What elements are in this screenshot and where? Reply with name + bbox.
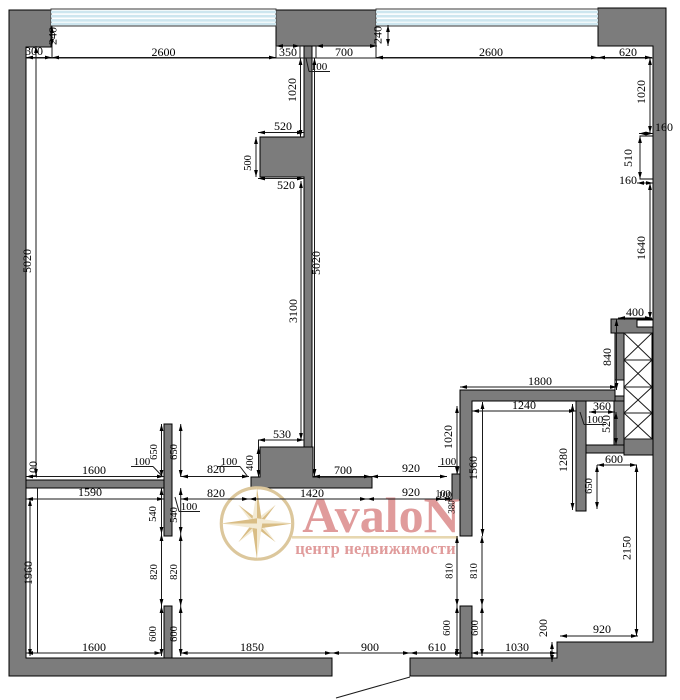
svg-text:600: 600 bbox=[169, 626, 180, 642]
svg-text:300: 300 bbox=[25, 44, 43, 58]
svg-text:810: 810 bbox=[445, 563, 456, 579]
svg-text:520: 520 bbox=[599, 415, 613, 433]
svg-text:350: 350 bbox=[279, 45, 297, 59]
svg-text:530: 530 bbox=[273, 427, 291, 441]
svg-text:820: 820 bbox=[169, 564, 180, 580]
svg-text:1800: 1800 bbox=[528, 374, 552, 388]
svg-text:240: 240 bbox=[371, 26, 385, 44]
svg-text:650: 650 bbox=[169, 444, 180, 460]
svg-text:650: 650 bbox=[149, 444, 160, 460]
svg-text:160: 160 bbox=[619, 173, 637, 187]
svg-text:1020: 1020 bbox=[441, 425, 455, 449]
svg-text:5020: 5020 bbox=[20, 249, 34, 273]
svg-text:центр недвижимости: центр недвижимости bbox=[295, 539, 456, 558]
svg-text:1020: 1020 bbox=[634, 80, 648, 104]
svg-text:520: 520 bbox=[277, 178, 295, 192]
svg-text:500: 500 bbox=[243, 155, 254, 171]
svg-text:820: 820 bbox=[149, 564, 160, 580]
svg-text:1030: 1030 bbox=[505, 640, 529, 654]
svg-text:380: 380 bbox=[447, 500, 457, 514]
svg-text:2600: 2600 bbox=[479, 45, 503, 59]
svg-text:400: 400 bbox=[626, 305, 644, 319]
svg-text:600: 600 bbox=[148, 626, 159, 642]
svg-text:1600: 1600 bbox=[82, 463, 106, 477]
svg-text:2600: 2600 bbox=[152, 45, 176, 59]
svg-text:510: 510 bbox=[621, 149, 635, 167]
svg-text:600: 600 bbox=[442, 620, 453, 636]
svg-text:1600: 1600 bbox=[82, 640, 106, 654]
svg-text:920: 920 bbox=[593, 622, 611, 636]
svg-text:540: 540 bbox=[148, 506, 159, 522]
svg-text:1560: 1560 bbox=[466, 456, 480, 480]
svg-text:100: 100 bbox=[26, 461, 40, 479]
svg-text:2150: 2150 bbox=[620, 536, 634, 560]
svg-text:920: 920 bbox=[402, 461, 420, 475]
svg-text:360: 360 bbox=[593, 399, 611, 413]
svg-text:1280: 1280 bbox=[556, 448, 570, 472]
svg-text:700: 700 bbox=[335, 45, 353, 59]
svg-text:600: 600 bbox=[605, 452, 623, 466]
svg-text:600: 600 bbox=[470, 620, 481, 636]
svg-text:650: 650 bbox=[584, 478, 595, 494]
svg-text:820: 820 bbox=[207, 486, 225, 500]
svg-text:900: 900 bbox=[361, 640, 379, 654]
svg-text:3100: 3100 bbox=[286, 299, 300, 323]
svg-text:200: 200 bbox=[536, 619, 550, 637]
svg-text:5020: 5020 bbox=[309, 251, 323, 275]
svg-text:920: 920 bbox=[402, 485, 420, 499]
svg-text:810: 810 bbox=[469, 563, 480, 579]
svg-text:100: 100 bbox=[438, 490, 452, 500]
svg-text:1960: 1960 bbox=[21, 561, 35, 585]
svg-text:1020: 1020 bbox=[285, 78, 299, 102]
svg-text:1590: 1590 bbox=[78, 485, 102, 499]
svg-text:620: 620 bbox=[619, 45, 637, 59]
svg-text:1850: 1850 bbox=[240, 640, 264, 654]
svg-text:1640: 1640 bbox=[634, 236, 648, 260]
svg-text:240: 240 bbox=[46, 27, 60, 45]
svg-text:400: 400 bbox=[245, 455, 256, 471]
svg-text:1420: 1420 bbox=[300, 486, 324, 500]
svg-text:700: 700 bbox=[334, 463, 352, 477]
svg-text:160: 160 bbox=[655, 120, 673, 134]
svg-text:1240: 1240 bbox=[512, 398, 536, 412]
svg-text:610: 610 bbox=[428, 640, 446, 654]
svg-text:520: 520 bbox=[274, 119, 292, 133]
svg-text:840: 840 bbox=[600, 348, 614, 366]
